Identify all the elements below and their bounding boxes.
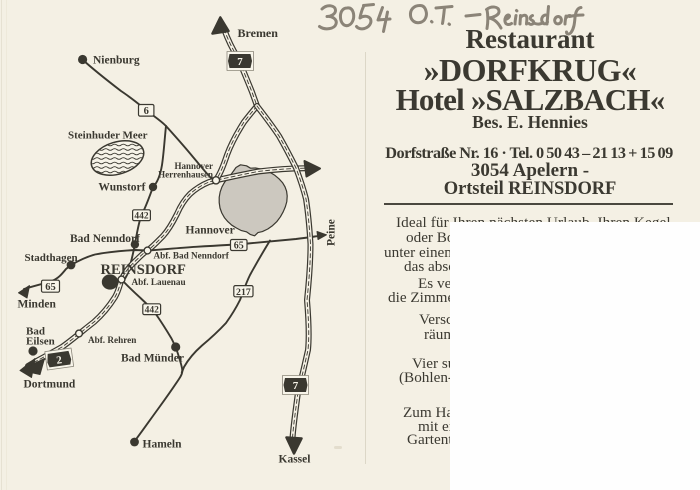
svg-text:Wunstorf: Wunstorf bbox=[98, 182, 145, 194]
svg-text:Bad Münder: Bad Münder bbox=[121, 353, 184, 365]
svg-text:Herrenhausen: Herrenhausen bbox=[158, 170, 213, 180]
svg-text:Abf. Bad Nenndorf: Abf. Bad Nenndorf bbox=[154, 251, 230, 261]
svg-text:442: 442 bbox=[145, 306, 160, 316]
svg-text:7: 7 bbox=[293, 380, 299, 392]
svg-text:65: 65 bbox=[45, 282, 56, 293]
svg-text:442: 442 bbox=[134, 212, 149, 222]
svg-text:Minden: Minden bbox=[18, 299, 57, 311]
svg-text:Peine: Peine bbox=[326, 219, 338, 246]
svg-text:6: 6 bbox=[144, 106, 149, 117]
svg-text:Dortmund: Dortmund bbox=[24, 379, 76, 391]
svg-text:REINSDORF: REINSDORF bbox=[101, 262, 187, 278]
svg-text:Hameln: Hameln bbox=[143, 439, 183, 451]
svg-text:Kassel: Kassel bbox=[279, 454, 311, 466]
svg-text:Abf. Rehren: Abf. Rehren bbox=[88, 335, 136, 345]
svg-text:Eilsen: Eilsen bbox=[26, 336, 55, 348]
svg-text:217: 217 bbox=[236, 287, 251, 298]
svg-text:Steinhuder Meer: Steinhuder Meer bbox=[68, 130, 148, 142]
svg-text:Abf. Lauenau: Abf. Lauenau bbox=[132, 277, 186, 287]
svg-text:Bad Nenndorf: Bad Nenndorf bbox=[70, 233, 140, 245]
svg-text:Stadthagen: Stadthagen bbox=[25, 252, 78, 264]
svg-text:65: 65 bbox=[234, 241, 244, 252]
svg-text:Hannover: Hannover bbox=[186, 225, 235, 237]
